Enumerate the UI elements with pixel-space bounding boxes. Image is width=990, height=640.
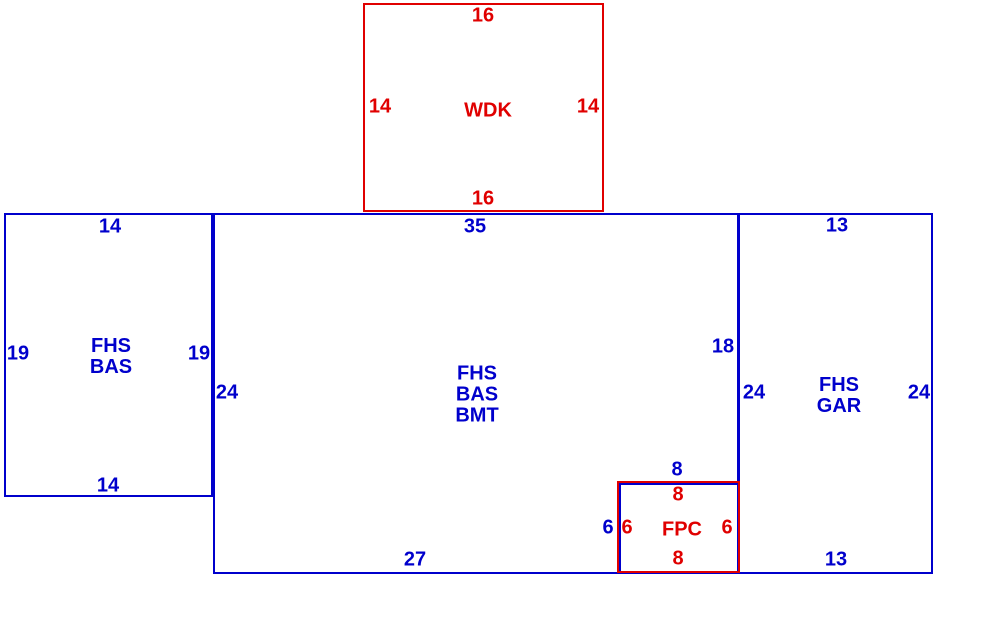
dim-wdk-left: 14 <box>369 97 391 118</box>
dim-fpc-top: 8 <box>672 485 683 506</box>
area-label-garage-line2: GAR <box>817 396 861 417</box>
dim-fpc-right: 6 <box>721 518 732 539</box>
dim-left-wing-right: 19 <box>188 344 210 365</box>
area-label-garage-line1: FHS <box>817 375 861 396</box>
dim-main-fpc-notch-left: 6 <box>602 518 613 539</box>
area-label-garage: FHS GAR <box>817 375 861 417</box>
dim-left-wing-top: 14 <box>99 217 121 238</box>
dim-garage-right: 24 <box>908 383 930 404</box>
dim-left-wing-left: 19 <box>7 344 29 365</box>
dim-wdk-right: 14 <box>577 97 599 118</box>
area-label-main-line1: FHS <box>455 364 498 385</box>
area-label-main: FHS BAS BMT <box>455 364 498 427</box>
dim-fpc-bottom: 8 <box>672 549 683 570</box>
dim-wdk-bottom: 16 <box>472 189 494 210</box>
dim-main-bottom: 27 <box>404 550 426 571</box>
area-label-left-wing: FHS BAS <box>90 336 132 378</box>
dim-garage-top: 13 <box>826 216 848 237</box>
dim-main-top: 35 <box>464 217 486 238</box>
area-label-left-wing-line1: FHS <box>90 336 132 357</box>
area-label-wdk: WDK <box>464 101 512 122</box>
dim-main-left: 24 <box>216 383 238 404</box>
dim-wdk-top: 16 <box>472 6 494 27</box>
dim-main-fpc-notch-top: 8 <box>671 460 682 481</box>
area-label-main-line3: BMT <box>455 406 498 427</box>
dim-garage-bottom: 13 <box>825 550 847 571</box>
area-label-main-line2: BAS <box>455 385 498 406</box>
dim-fpc-left: 6 <box>621 518 632 539</box>
dim-garage-left: 24 <box>743 383 765 404</box>
dim-main-right-upper: 18 <box>712 337 734 358</box>
area-label-left-wing-line2: BAS <box>90 357 132 378</box>
area-label-fpc: FPC <box>662 520 702 541</box>
property-sketch-canvas: 16 14 WDK 14 16 14 19 FHS BAS 19 14 35 2… <box>0 0 990 640</box>
dim-left-wing-bottom: 14 <box>97 476 119 497</box>
